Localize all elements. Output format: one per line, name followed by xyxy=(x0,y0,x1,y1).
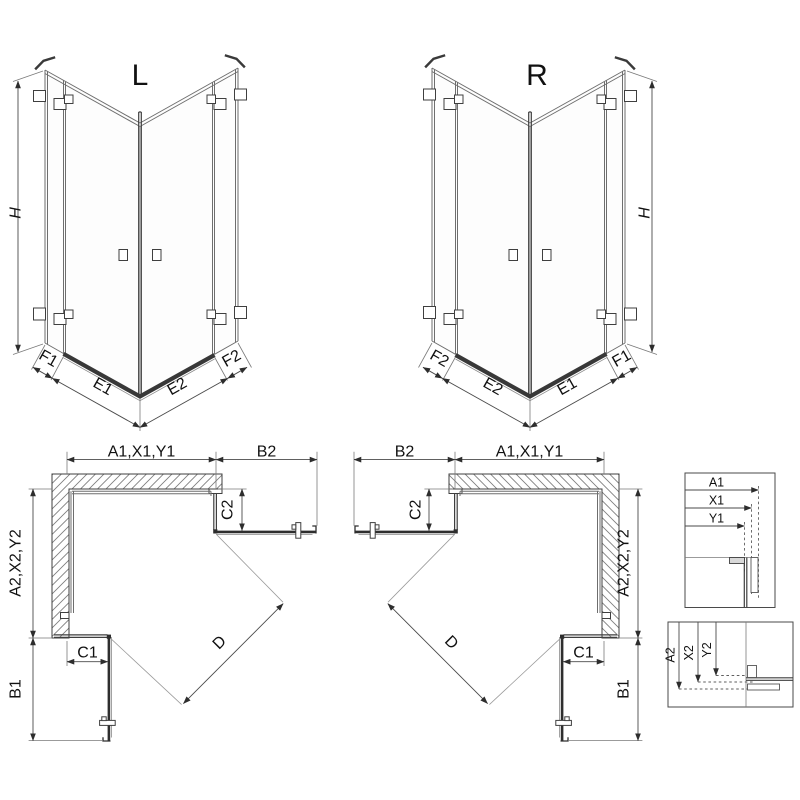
dim-label-f1-left: F1 xyxy=(36,347,61,371)
detail-box-width: A1 X1 Y1 xyxy=(685,473,775,608)
technical-drawing-page: L H F1 E1 E2 F2 R H F2 E2 E1 F1 A1,X1,Y1… xyxy=(0,0,800,800)
iso-left-title: L xyxy=(132,59,149,92)
iso-right-title: R xyxy=(526,59,548,92)
dim-label-height-right: H xyxy=(637,207,654,219)
detail-box-depth: A2 X2 Y2 xyxy=(664,622,794,707)
iso-view-left: L H F1 E1 E2 F2 xyxy=(8,56,252,431)
detail-label-a1: A1 xyxy=(709,476,724,490)
dim-label-c1-planright: C1 xyxy=(573,645,594,662)
shower-enclosure-dimension-diagram: L H F1 E1 E2 F2 R H F2 E2 E1 F1 A1,X1,Y1… xyxy=(0,0,800,800)
dim-label-c2-planleft: C2 xyxy=(220,499,237,520)
detail-label-x2: X2 xyxy=(682,645,696,660)
dim-label-b2-planright: B2 xyxy=(395,443,415,460)
dim-label-f2-left: F2 xyxy=(219,347,244,371)
dim-label-a2x2y2-planright: A2,X2,Y2 xyxy=(616,529,633,597)
dim-label-b2-planleft: B2 xyxy=(257,443,277,460)
dim-label-a1x1y1-planright: A1,X1,Y1 xyxy=(496,443,564,460)
dim-label-height-left: H xyxy=(8,207,25,219)
dim-label-a1x1y1-planleft: A1,X1,Y1 xyxy=(108,443,176,460)
detail-label-x1: X1 xyxy=(709,494,724,508)
dim-label-d-planright: D xyxy=(441,633,461,653)
iso-view-right: R H F2 E2 E1 F1 xyxy=(419,56,658,431)
dim-label-c2-planright: C2 xyxy=(407,499,424,520)
detail-label-y2: Y2 xyxy=(700,642,714,657)
dim-label-c1-planleft: C1 xyxy=(77,645,98,662)
dim-label-a2x2y2-planleft: A2,X2,Y2 xyxy=(7,529,24,597)
dim-label-f1-right: F1 xyxy=(609,347,634,371)
dim-label-b1-planright: B1 xyxy=(616,679,633,699)
plan-view-left: A1,X1,Y1 B2 C2 A2,X2,Y2 C1 B1 D xyxy=(7,443,317,741)
plan-view-right: B2 A1,X1,Y1 C2 A2,X2,Y2 C1 B1 D xyxy=(354,443,642,741)
dim-label-b1-planleft: B1 xyxy=(7,679,24,699)
detail-label-a2: A2 xyxy=(664,647,678,662)
dim-label-d-planleft: D xyxy=(210,633,230,653)
detail-label-y1: Y1 xyxy=(709,512,724,526)
